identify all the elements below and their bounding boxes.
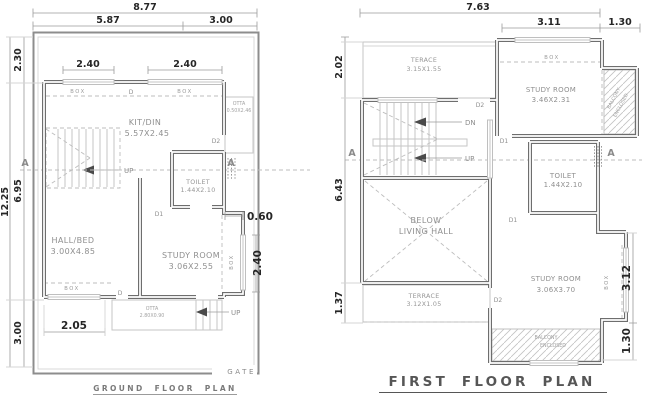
ff-balcony-side-hatch [604, 70, 635, 134]
ff-dim-total-width: 7.63 [466, 2, 489, 13]
gf-otta-side-name: OTTA [233, 101, 246, 107]
ff-living-line2: LIVING HALL [399, 227, 453, 236]
gf-dim-window-bottom: 2.05 [61, 320, 87, 332]
ff-dn-arrow-icon [414, 118, 426, 127]
ff-dim-rear-terrace-depth: 1.37 [334, 291, 345, 314]
ff-up-arrow-icon [414, 154, 426, 163]
gf-room-study-size: 3.06X2.55 [169, 262, 214, 271]
gf-otta-rear-size: 2.80X0.90 [140, 313, 165, 319]
gf-dim-window-top-left: 2.40 [76, 59, 100, 70]
ff-box-label-top: BOX [544, 55, 560, 61]
gf-otta-side-size: 0.50X2.46 [227, 108, 252, 114]
ff-study-rear-size: 3.06X3.70 [537, 286, 576, 294]
gf-dim-building-depth: 6.95 [13, 179, 24, 202]
ff-terrace-rear-size: 3.12X1.05 [406, 301, 441, 308]
ff-study-top-size: 3.46X2.31 [532, 96, 571, 104]
ff-living-line1: BELOW [411, 216, 442, 225]
gf-up-label-stairs: UP [124, 167, 133, 175]
ff-door-d2-top: D2 [476, 102, 485, 109]
gf-door-d-top: D [129, 89, 134, 96]
ff-dim-bay-window: 3.12 [621, 265, 633, 291]
gf-title: GROUND FLOOR PLAN [93, 384, 236, 393]
gf-dim-rear-setback: 3.00 [13, 321, 24, 345]
ff-dim-balcony-width: 1.30 [608, 17, 632, 28]
ff-study-top-name: STUDY ROOM [526, 86, 576, 94]
gf-rear-steps-outline [196, 300, 222, 330]
gf-dim-total-depth: 12.25 [0, 187, 11, 217]
ground-floor-plan: 8.77 5.87 3.00 12.25 2.30 6.95 3.00 2.40… [0, 2, 310, 395]
ff-terrace-rear-name: TERRACE [408, 293, 440, 300]
gf-rear-up-arrow-icon [196, 308, 207, 317]
ff-staircase [364, 103, 467, 175]
ff-dn-label: DN [465, 119, 476, 127]
ff-terrace-top-name: TERACE [410, 57, 437, 64]
ff-toilet-name: TOILET [549, 172, 577, 180]
gf-staircase [46, 128, 121, 188]
gf-dim-bay-window: 2.40 [252, 250, 264, 276]
ff-door-d1-rear: D1 [509, 217, 518, 224]
gf-otta-rear-name: OTTA [146, 306, 159, 312]
ff-door-d1-top: D1 [500, 138, 509, 145]
ff-up-label: UP [465, 155, 474, 163]
gf-dim-total-width: 8.77 [133, 2, 156, 13]
first-floor-plan: 7.63 3.11 1.30 2.02 6.43 1.37 3.12 1.30 … [334, 2, 642, 393]
gf-box-label-2: BOX [177, 89, 193, 95]
gf-room-kitdin-name: KIT/DIN [129, 118, 162, 127]
ff-study-rear-name: STUDY ROOM [531, 275, 581, 283]
floor-plan-drawing: 8.77 5.87 3.00 12.25 2.30 6.95 3.00 2.40… [0, 0, 650, 400]
gf-section-marker-right: A [227, 158, 235, 169]
ff-door-d2-rear: D2 [494, 297, 503, 304]
gf-box-label-1: BOX [70, 89, 86, 95]
gf-room-toilet-name: TOILET [185, 179, 210, 186]
gf-dim-width-right: 3.00 [209, 15, 233, 26]
gf-dim-front-setback: 2.30 [13, 48, 24, 72]
ff-dim-study-width: 3.11 [537, 17, 560, 28]
ff-walls-inner [362, 40, 637, 363]
ff-toilet-size: 1.44X2.10 [544, 181, 583, 189]
gf-section-marker-left: A [21, 158, 29, 169]
ff-walls [362, 40, 637, 363]
gf-room-hallbed-size: 3.00X4.85 [51, 247, 96, 256]
gf-room-hallbed-name: HALL/BED [51, 236, 94, 245]
gf-up-label-rear: UP [231, 309, 240, 317]
gf-door-d-bottom: D [118, 290, 123, 297]
ff-dim-terrace-depth: 2.02 [334, 55, 345, 78]
gf-room-toilet-size: 1.44X2.10 [180, 187, 215, 194]
ff-balcony-rear-line1: BALCONY [535, 335, 558, 341]
ff-terrace-top-size: 3.15X1.55 [406, 66, 441, 73]
ff-section-marker-right: A [607, 148, 615, 159]
gf-dim-window-top-right: 2.40 [173, 59, 197, 70]
ff-section-marker-left: A [348, 148, 356, 159]
gf-room-kitdin-size: 5.57X2.45 [125, 129, 170, 138]
gf-room-study-name: STUDY ROOM [162, 251, 220, 260]
ff-box-label-bay: BOX [604, 274, 610, 290]
ff-balcony-rear-line2: ENCLOSED [540, 343, 566, 349]
gf-box-label-bay: BOX [229, 254, 235, 270]
floor-plan-svg: 8.77 5.87 3.00 12.25 2.30 6.95 3.00 2.40… [0, 0, 650, 400]
gf-door-d2: D2 [212, 138, 221, 145]
gf-dim-bay-offset: 0.60 [247, 211, 273, 223]
gf-box-label-3: BOX [64, 286, 80, 292]
ff-title: FIRST FLOOR PLAN [388, 374, 595, 390]
ff-dim-building-depth: 6.43 [334, 178, 345, 201]
ff-dim-balcony-depth: 1.30 [621, 328, 633, 354]
gf-door-d1: D1 [155, 211, 164, 218]
gf-dim-width-left: 5.87 [96, 15, 119, 26]
gf-gate-label: GATE [227, 368, 256, 376]
